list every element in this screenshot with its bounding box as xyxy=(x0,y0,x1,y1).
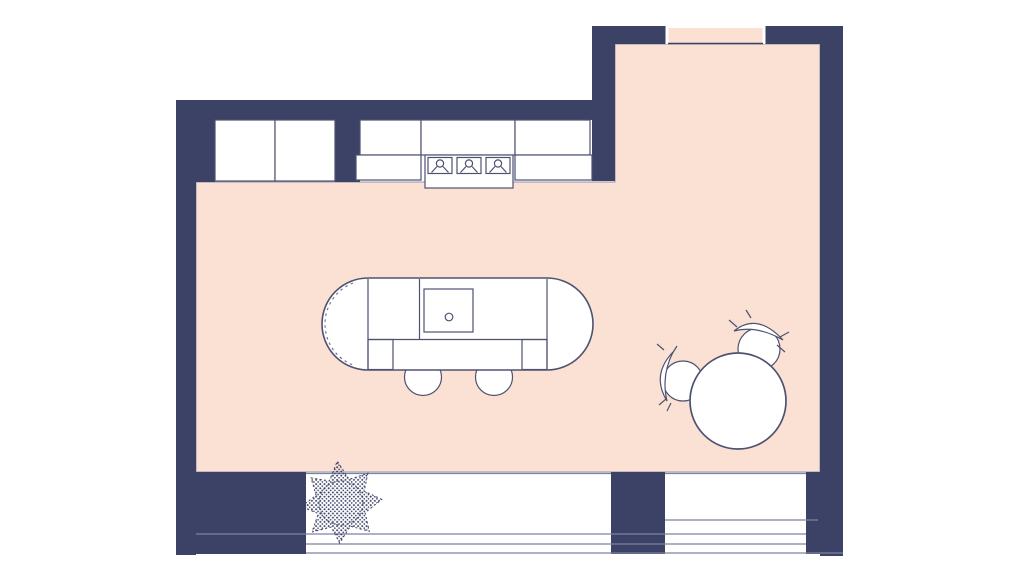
wall-dining-left xyxy=(592,26,615,181)
wall-top-dining-left xyxy=(592,26,668,44)
cabinet xyxy=(275,120,335,181)
dining-table xyxy=(690,353,786,449)
wall-top-kitchen xyxy=(176,100,615,120)
wall-bottom-left-block xyxy=(176,472,306,554)
countertop xyxy=(515,155,592,180)
cabinet xyxy=(360,120,421,155)
countertop xyxy=(356,155,421,180)
floor-plan-canvas xyxy=(0,0,1024,574)
doorway-niche-floor xyxy=(668,28,763,44)
door-jamb-left xyxy=(666,25,669,44)
wall-bottom-right-block xyxy=(806,472,843,554)
door-jamb-right xyxy=(763,25,766,44)
floor-plan xyxy=(0,0,1024,574)
island-body xyxy=(322,278,593,370)
cooktop xyxy=(425,155,513,188)
cabinet xyxy=(215,120,275,181)
cabinet xyxy=(421,120,515,155)
wall-bottom-pillar xyxy=(611,472,665,554)
cabinet xyxy=(515,120,590,155)
kitchen-counters xyxy=(215,120,592,188)
